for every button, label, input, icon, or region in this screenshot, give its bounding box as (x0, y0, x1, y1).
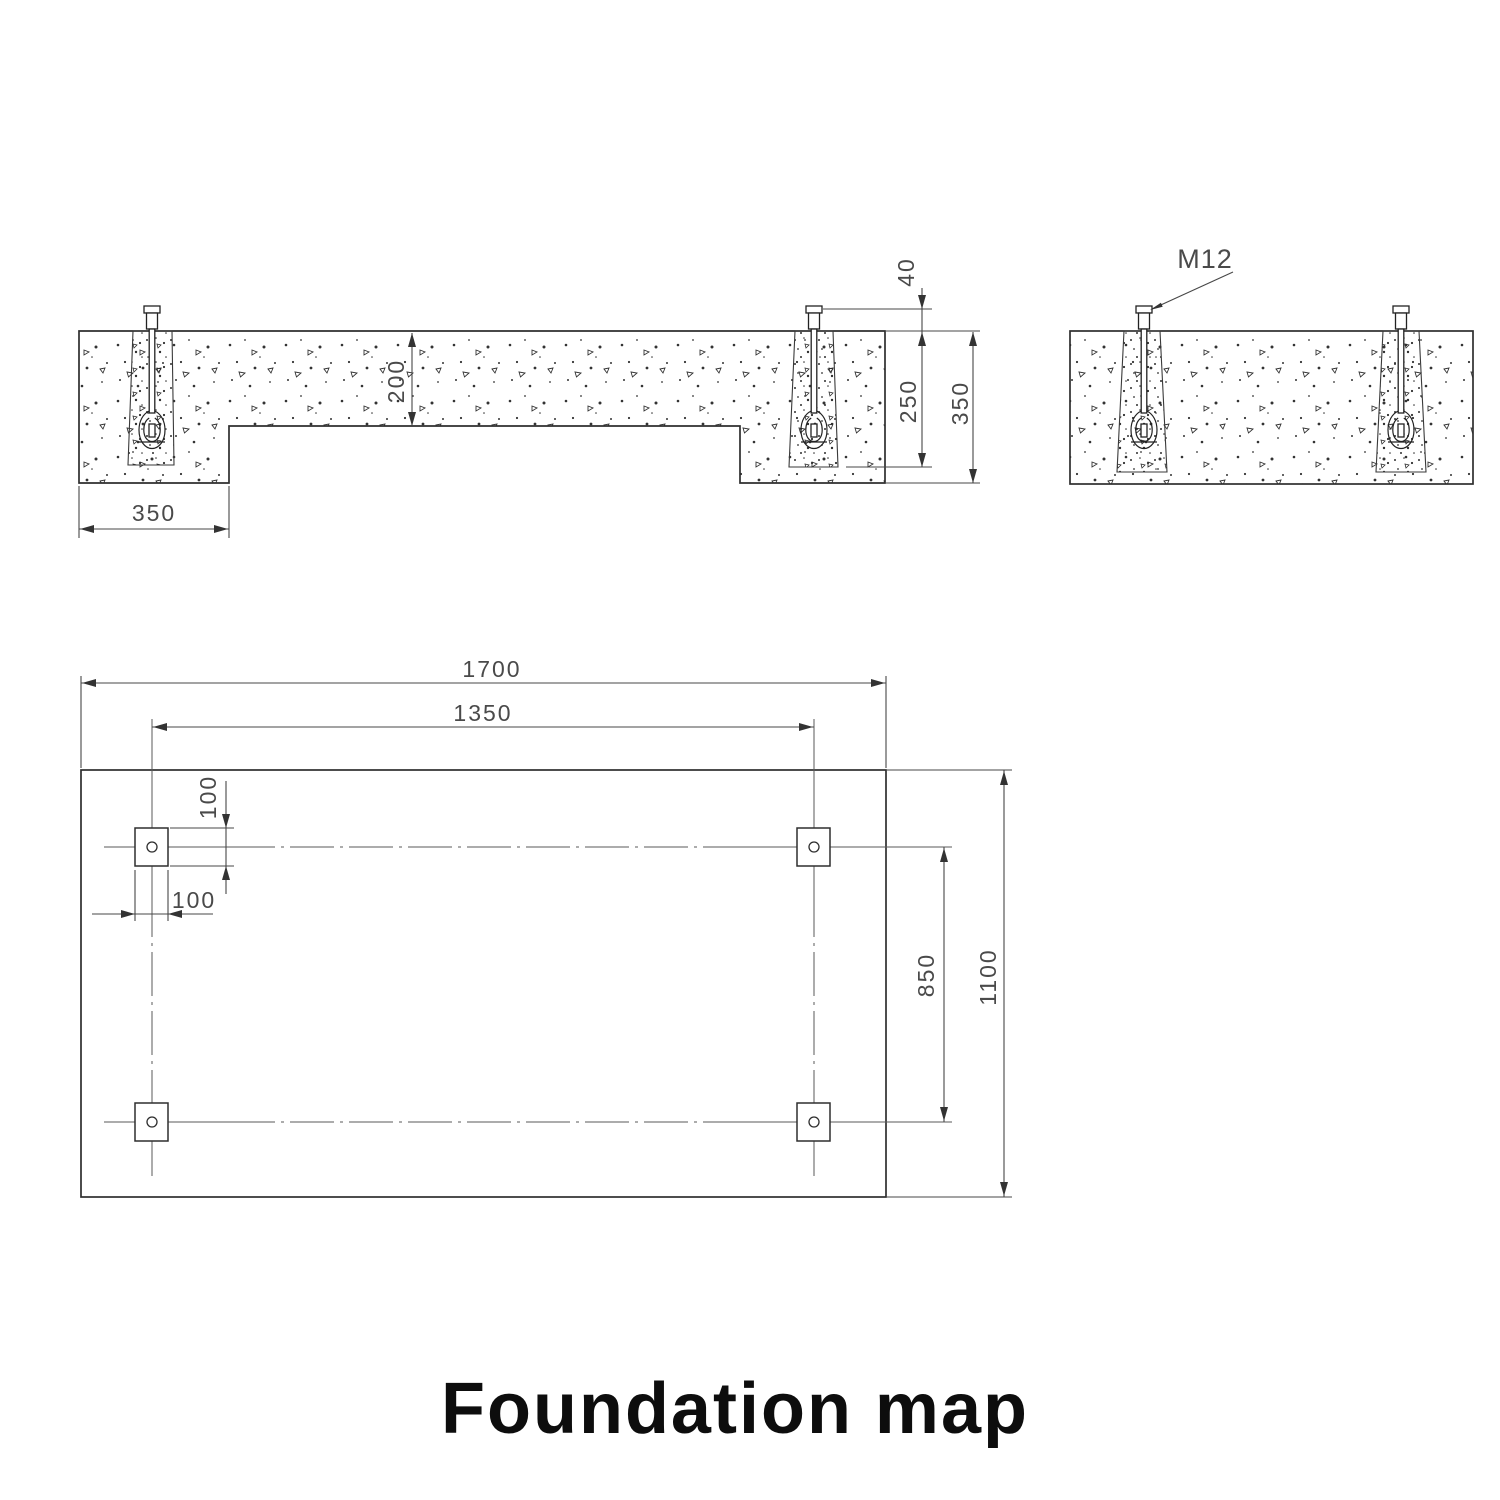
dim-label: 1350 (453, 700, 512, 726)
dim-overall-width: 1100 (886, 770, 1012, 1197)
foundation-drawing-page: 200 350 40 250 (0, 0, 1500, 1500)
dim-bolt-spacing-width: 850 (913, 847, 948, 1122)
dim-pocket-height: 100 (170, 775, 234, 894)
dim-label: 1700 (462, 656, 521, 682)
front-section-view: 200 350 40 250 (79, 257, 980, 538)
bolt-hole (809, 842, 819, 852)
dim-bolt-spacing-length: 1350 (152, 700, 814, 731)
dim-label: 350 (132, 500, 176, 526)
anchor-positions (135, 828, 830, 1141)
dim-label: 200 (383, 359, 409, 403)
dim-label: 350 (947, 381, 973, 425)
page-title: Foundation map (441, 1369, 1029, 1449)
bolt-size-callout: M12 (1150, 244, 1233, 310)
bolt-hole (809, 1117, 819, 1127)
dim-pocket-width: 100 (92, 870, 216, 921)
plan-view: 1700 1350 100 100 (81, 656, 1012, 1197)
bolt-hole (147, 1117, 157, 1127)
dim-label: 100 (172, 887, 216, 913)
dim-label: 250 (895, 379, 921, 423)
foundation-plate-outline (81, 770, 886, 1197)
dim-pier-width: 350 (79, 486, 229, 538)
concrete-section (79, 331, 885, 483)
dim-label: 850 (913, 953, 939, 997)
drawing-canvas: 200 350 40 250 (0, 0, 1500, 1500)
dim-label: 40 (893, 257, 919, 287)
bolt-size-label: M12 (1177, 244, 1233, 274)
side-section-view: M12 (1070, 244, 1473, 484)
bolt-hole (147, 842, 157, 852)
dim-label: 100 (195, 775, 221, 819)
dim-label: 1100 (975, 948, 1001, 1005)
